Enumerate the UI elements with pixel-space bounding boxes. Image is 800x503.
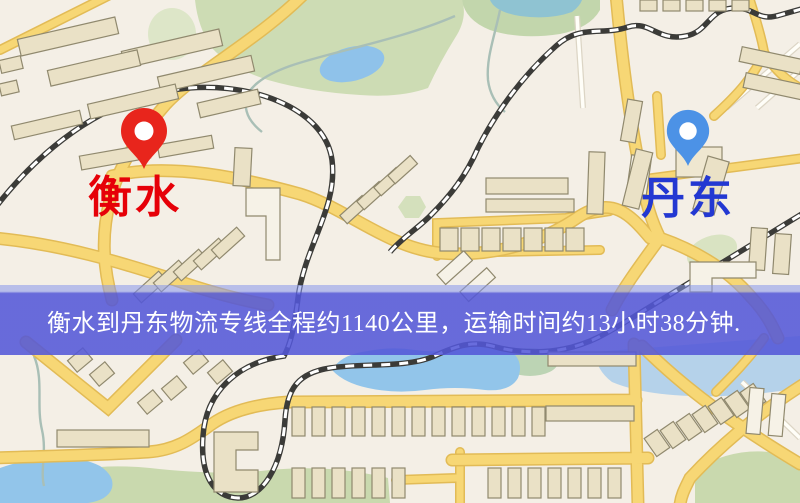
origin-label: 衡水 <box>88 176 182 220</box>
map-screenshot: 衡水 丹东 衡水到丹东物流专线全程约1140公里，运输时间约13小时38分钟. <box>0 0 800 503</box>
map-canvas[interactable] <box>0 0 800 503</box>
destination-label: 丹东 <box>641 177 735 221</box>
origin-pin-hole <box>135 122 154 141</box>
route-info-text: 衡水到丹东物流专线全程约1140公里，运输时间约13小时38分钟. <box>0 303 741 338</box>
route-info-banner: 衡水到丹东物流专线全程约1140公里，运输时间约13小时38分钟. <box>0 285 800 355</box>
destination-pin-hole <box>679 122 696 139</box>
